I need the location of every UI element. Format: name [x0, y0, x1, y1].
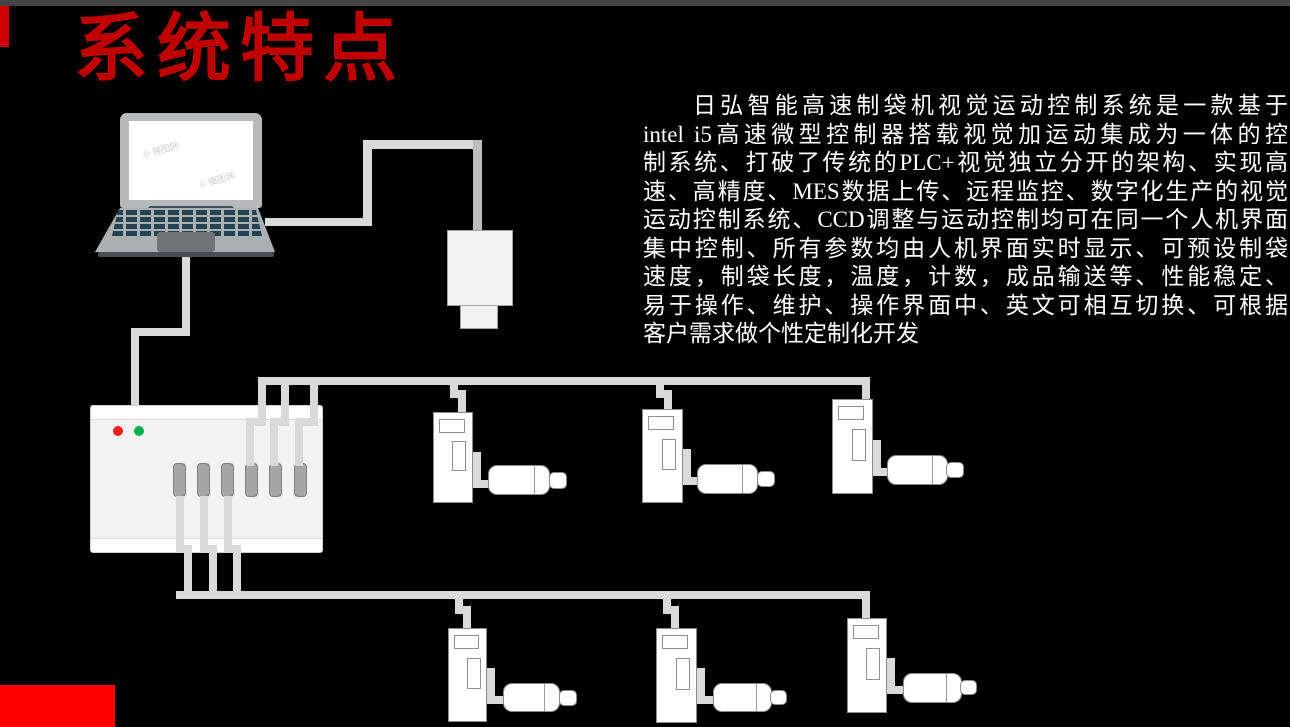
- cable-segment: [131, 328, 190, 336]
- description-paragraph: 日弘智能高速制袋机视觉运动控制系统是一款基于intel i5高速微型控制器搭载视…: [643, 92, 1288, 349]
- controller-port: [197, 463, 210, 497]
- motor-shaft: [770, 690, 787, 705]
- top-bar: [0, 0, 1290, 6]
- cable-segment: [265, 218, 371, 226]
- motor-shaft: [960, 680, 977, 695]
- cable-segment: [246, 426, 254, 466]
- motor: [697, 464, 758, 494]
- servo-drive: [642, 409, 683, 503]
- watermark-text: © 摄图网: [142, 139, 180, 161]
- description-line: 客户需求做个性定制化开发: [643, 320, 1288, 349]
- corner-accent: [0, 6, 9, 47]
- servo-drive: [433, 412, 473, 503]
- cable-segment: [463, 606, 471, 629]
- drive-display: [662, 635, 688, 649]
- cable-segment: [258, 377, 870, 385]
- motor-shaft: [559, 690, 577, 706]
- controller-port: [245, 463, 258, 497]
- controller-port: [173, 463, 186, 497]
- motor-endcap: [932, 456, 939, 484]
- page-title: 系统特点: [74, 8, 406, 89]
- led-green: [134, 426, 144, 436]
- motor-endcap: [946, 674, 953, 702]
- slide: 系统特点 日弘智能高速制袋机视觉运动控制系统是一款基于intel i5高速微型控…: [0, 0, 1290, 727]
- description-line: 运动控制系统、CCD调整与运动控制均可在同一个人机界面: [643, 206, 1288, 235]
- drive-connector: [467, 658, 481, 689]
- drive-display: [853, 625, 879, 639]
- drive-connector: [852, 429, 866, 461]
- cable-segment: [862, 377, 870, 401]
- motor-endcap: [756, 684, 763, 711]
- cable-segment: [258, 379, 266, 426]
- laptop-touchpad: [157, 232, 215, 252]
- laptop-base: [98, 252, 274, 257]
- laptop: © 摄图网 © 摄图网: [90, 110, 280, 260]
- motor: [713, 683, 772, 712]
- cable-segment: [862, 591, 870, 619]
- servo-drive: [832, 399, 873, 494]
- servo-drive: [448, 628, 487, 722]
- cable-segment: [310, 379, 318, 426]
- watermark-text: © 摄图网: [198, 169, 236, 191]
- description-line: 集中控制、所有参数均由人机界面实时显示、可预设制袋: [643, 235, 1288, 264]
- drive-display: [648, 416, 674, 430]
- drive-display: [838, 406, 864, 420]
- description-line: 易于操作、维护、操作界面中、英文可相互切换、可根据: [643, 292, 1288, 321]
- camera-body: [447, 230, 513, 306]
- led-red: [113, 426, 123, 436]
- cable-segment: [176, 591, 870, 599]
- drive-connector: [866, 648, 880, 680]
- description-line: 速、高精度、MES数据上传、远程监控、数字化生产的视觉: [643, 178, 1288, 207]
- description-line: 速度，制袋长度，温度，计数，成品输送等、性能稳定、: [643, 263, 1288, 292]
- motor: [503, 683, 560, 712]
- motor: [903, 673, 962, 703]
- controller-port: [294, 463, 307, 497]
- servo-drive: [656, 628, 697, 723]
- cable-segment: [281, 379, 289, 426]
- motor-shaft: [549, 472, 567, 489]
- motor-shaft: [946, 462, 964, 478]
- motor-endcap: [544, 684, 551, 711]
- motor-endcap: [534, 466, 541, 494]
- drive-connector: [452, 441, 466, 471]
- drive-display: [439, 419, 465, 433]
- motor: [887, 455, 948, 485]
- servo-drive: [847, 618, 887, 713]
- drive-connector: [676, 658, 690, 690]
- laptop-screen: © 摄图网 © 摄图网: [129, 121, 253, 200]
- controller-port: [269, 463, 282, 497]
- cable-segment: [363, 140, 372, 226]
- motor-shaft: [757, 471, 775, 487]
- camera-lens: [460, 305, 498, 329]
- cable-segment: [131, 328, 139, 405]
- cable-segment: [295, 426, 303, 466]
- description-line: 日弘智能高速制袋机视觉运动控制系统是一款基于: [643, 92, 1288, 121]
- cable-segment: [363, 140, 482, 149]
- cable-segment: [182, 252, 190, 336]
- drive-display: [454, 635, 479, 649]
- motor: [488, 465, 550, 495]
- bottom-accent-block: [0, 685, 115, 727]
- cable-segment: [473, 140, 482, 231]
- description-line: intel i5高速微型控制器搭载视觉加运动集成为一体的控: [643, 121, 1288, 150]
- cable-segment: [458, 390, 466, 414]
- cable-segment: [671, 606, 679, 629]
- motor-endcap: [742, 465, 749, 493]
- description-line: 制系统、打破了传统的PLC+视觉独立分开的架构、实现高: [643, 149, 1288, 178]
- drive-connector: [662, 439, 676, 470]
- cable-segment: [664, 390, 672, 411]
- cable-segment: [270, 426, 278, 466]
- controller-port: [221, 463, 234, 497]
